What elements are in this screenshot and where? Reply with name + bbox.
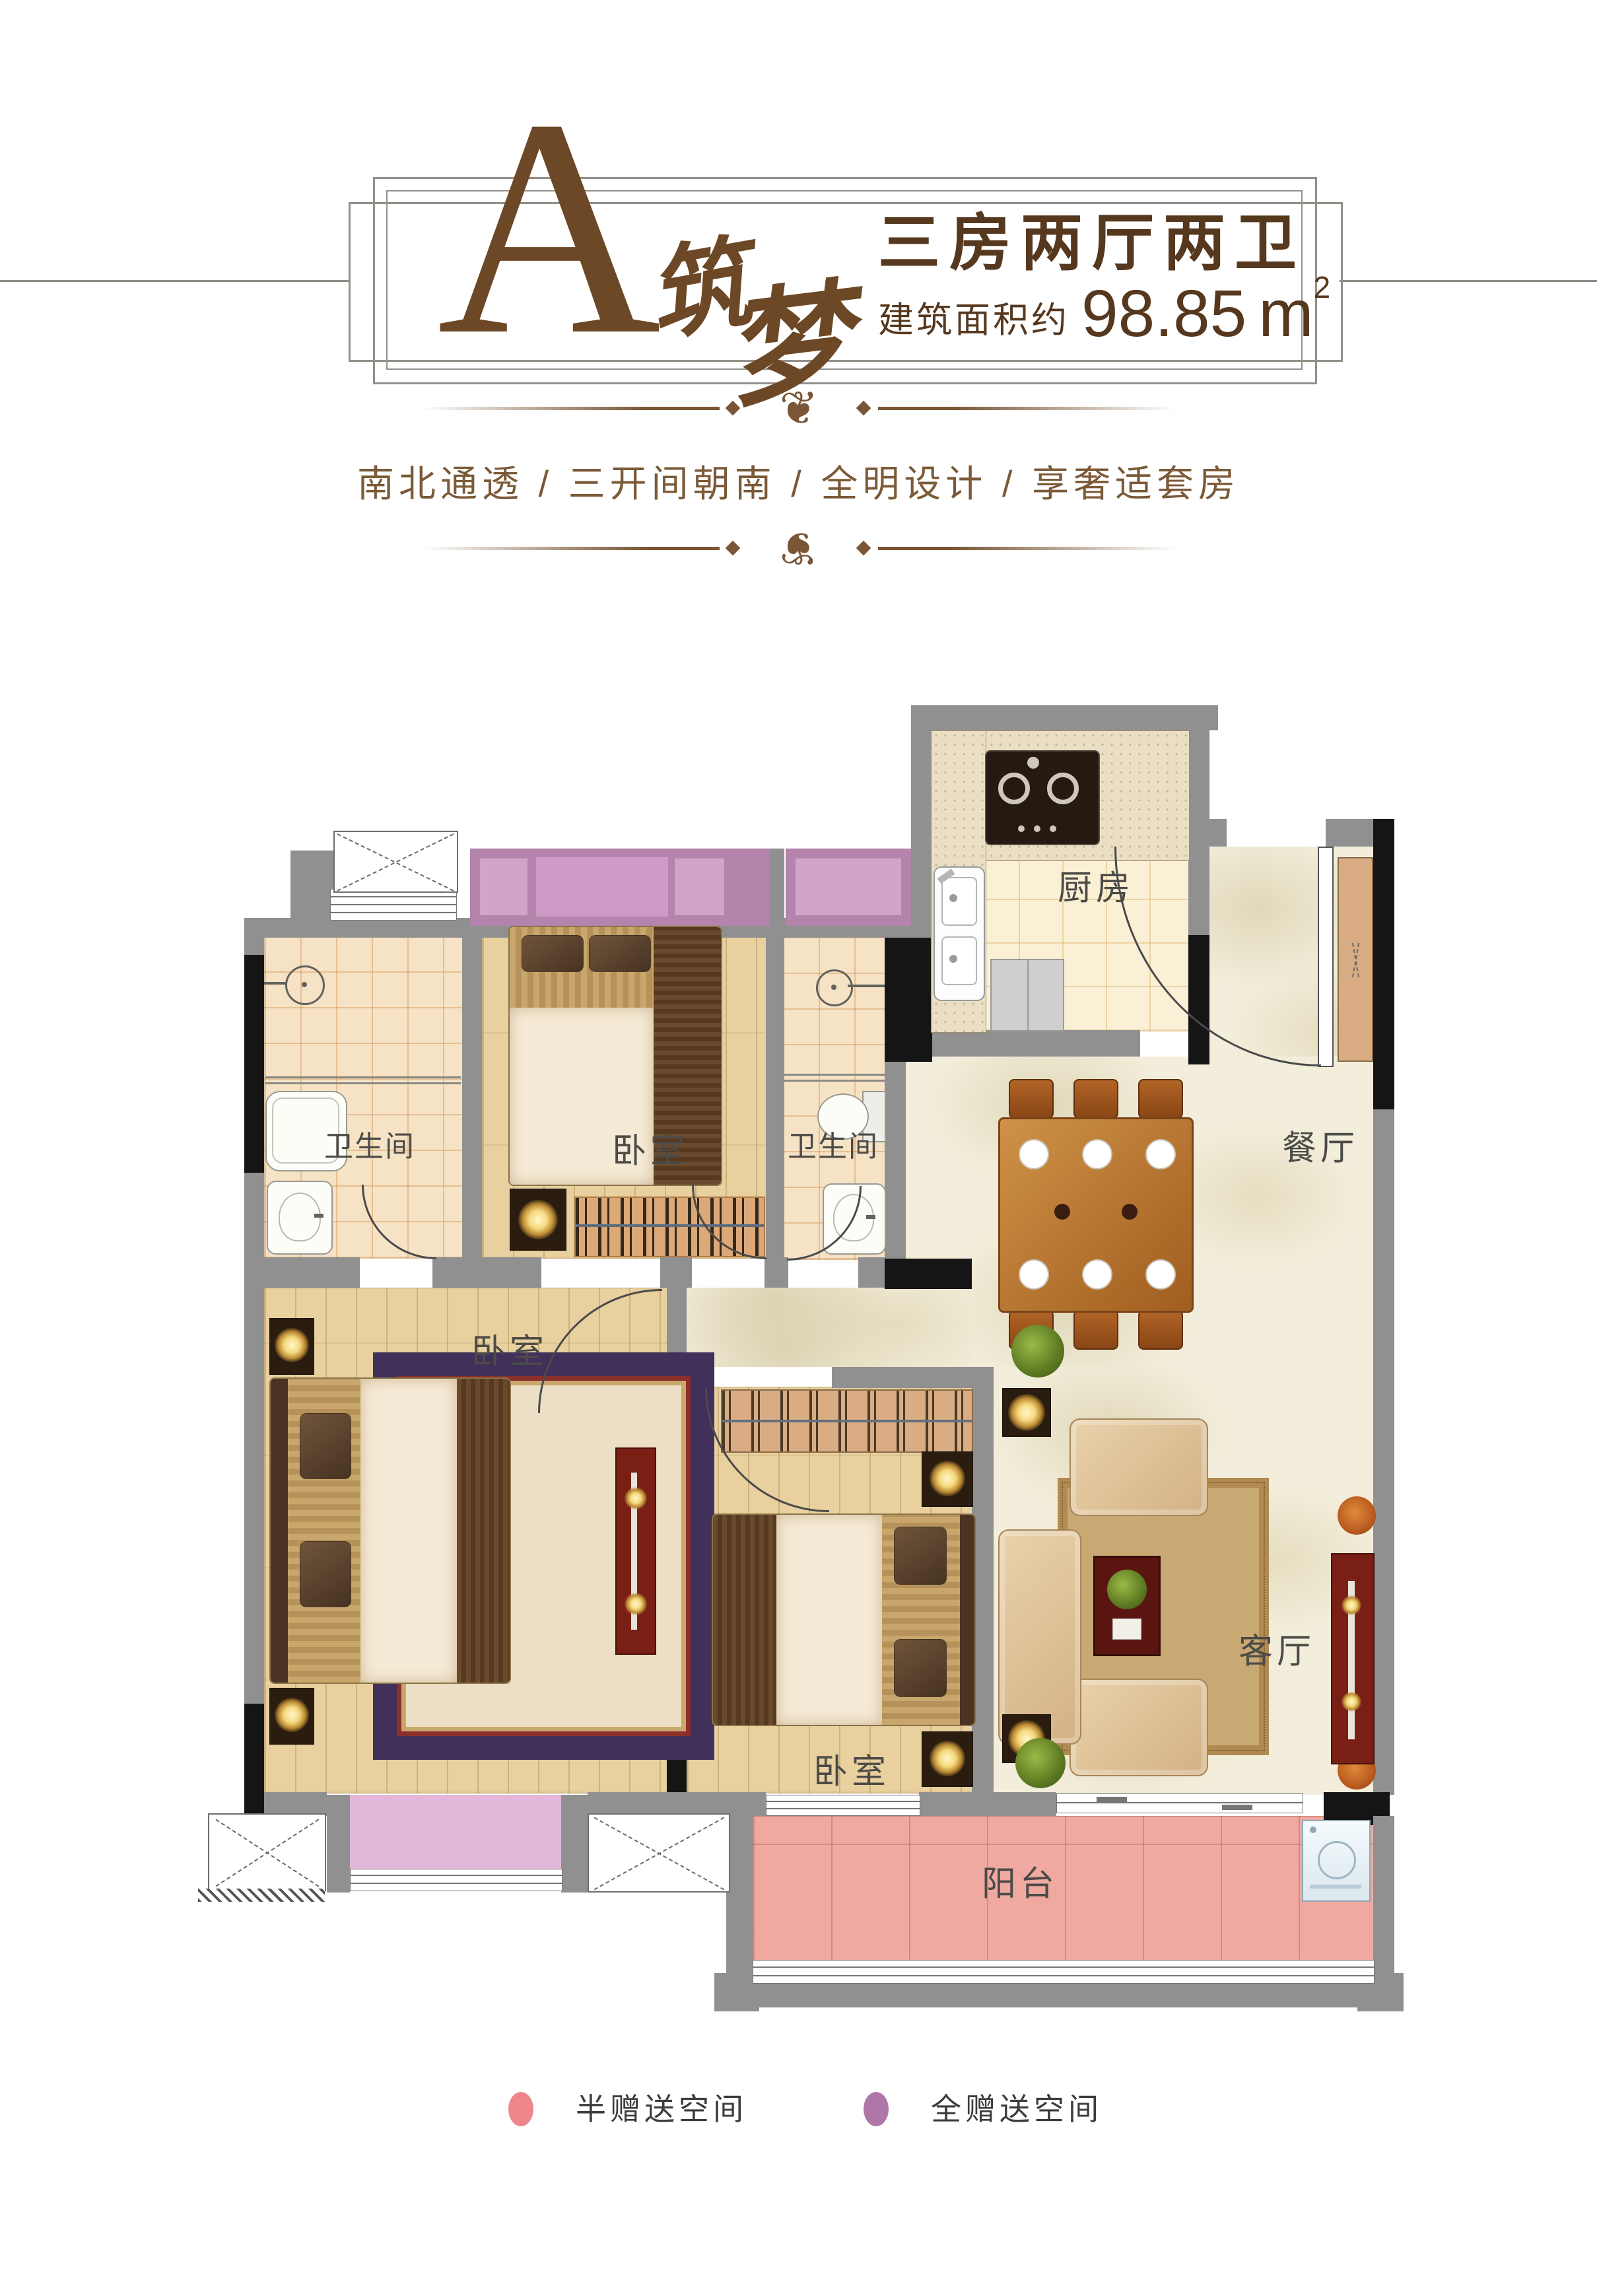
divider2-line-left xyxy=(423,547,720,550)
wall xyxy=(327,1795,350,1893)
tv-cabinet-icon xyxy=(615,1447,656,1655)
hatch-band xyxy=(198,1889,325,1902)
balcony-rail xyxy=(753,1960,1375,1984)
bath-top-label: 卫生间 xyxy=(324,1123,415,1165)
nightstand-icon xyxy=(269,1318,314,1375)
balcony-tile-line xyxy=(753,1844,1373,1845)
wall xyxy=(919,1792,1056,1816)
block-letter: A xyxy=(437,85,661,370)
wall xyxy=(726,1982,1394,2007)
bed-icon xyxy=(269,1377,511,1684)
sofa-icon xyxy=(1070,1418,1208,1516)
glass-partition xyxy=(265,1076,461,1078)
window xyxy=(766,1795,920,1816)
wall-column xyxy=(885,1259,972,1289)
chair-icon xyxy=(1073,1079,1118,1119)
plant-icon xyxy=(1011,1325,1064,1377)
entry-door-arc xyxy=(1114,847,1321,1066)
legend-dot-full-gift xyxy=(864,2092,889,2126)
bedroom-top-label: 卧室 xyxy=(612,1123,689,1173)
shower-icon xyxy=(285,965,325,1005)
chair-icon xyxy=(1138,1079,1183,1119)
fridge-icon xyxy=(990,959,1064,1031)
flue-box xyxy=(333,831,458,893)
flourish-icon: ❦ xyxy=(780,521,819,575)
nightstand-icon xyxy=(922,1451,973,1507)
kitchen-sink-icon xyxy=(934,866,985,1001)
header-rule-right xyxy=(1340,280,1597,282)
area-prefix: 建筑面积约 xyxy=(878,302,1070,343)
bed-icon xyxy=(712,1513,976,1726)
wall xyxy=(911,705,1218,730)
wall xyxy=(244,1173,264,1704)
shoe-cabinet-icon xyxy=(1338,857,1373,1062)
legend-label-full-gift: 全赠送空间 xyxy=(931,2092,1103,2126)
layout-title: 三房两厅两卫 xyxy=(878,193,1306,283)
wall xyxy=(858,1257,885,1288)
bath-mid-label: 卫生间 xyxy=(788,1123,879,1165)
bay-window-full-gift xyxy=(350,1795,561,1870)
wall xyxy=(264,1792,327,1816)
area-value: 98.85 xyxy=(1081,284,1246,343)
poster-page: A 筑 梦 三房两厅两卫 建筑面积约98.85m2 ❦ 南北通透 / 三开间朝南… xyxy=(0,0,1597,2296)
washing-machine-icon xyxy=(1302,1820,1371,1902)
chair-icon xyxy=(1138,1310,1183,1350)
nightstand-icon xyxy=(510,1189,566,1251)
header-rule-left xyxy=(0,280,349,282)
shower-icon xyxy=(816,969,853,1006)
bath-sink-icon xyxy=(267,1181,333,1255)
wall xyxy=(264,1257,360,1288)
stove-icon xyxy=(985,750,1100,845)
shower-arm xyxy=(264,982,287,985)
wall-column xyxy=(1373,819,1394,1109)
wall xyxy=(765,1257,788,1288)
bay-window-full-gift xyxy=(470,849,769,926)
bedroom-middle-label: 卧室 xyxy=(813,1744,890,1793)
wall xyxy=(462,924,482,1288)
tv-cabinet-icon xyxy=(1331,1553,1375,1764)
floor-lamp-icon xyxy=(1002,1388,1051,1437)
wall xyxy=(832,1367,994,1388)
window xyxy=(350,1869,562,1891)
divider2-line-right xyxy=(878,547,1175,550)
bay-window-full-gift xyxy=(786,849,911,926)
wall xyxy=(687,1792,766,1816)
wall-column xyxy=(244,955,264,1173)
wall xyxy=(911,730,931,924)
coffee-table-icon xyxy=(1093,1556,1161,1656)
chair-icon xyxy=(1073,1310,1118,1350)
bedroom-master-label: 卧室 xyxy=(471,1324,548,1374)
dining-label: 餐厅 xyxy=(1282,1121,1359,1170)
sofa-icon xyxy=(1070,1679,1208,1776)
wall xyxy=(1373,1109,1394,1795)
divider2-diamond-left xyxy=(726,541,741,556)
area-line: 建筑面积约98.85m2 xyxy=(878,284,1330,343)
dining-table-icon xyxy=(998,1117,1194,1313)
sofa-icon xyxy=(998,1529,1081,1745)
divider-line-right xyxy=(878,407,1175,410)
living-label: 客厅 xyxy=(1239,1624,1315,1673)
balcony-label: 阳台 xyxy=(982,1856,1058,1906)
glass-partition xyxy=(784,1080,885,1082)
plant-icon xyxy=(1338,1496,1376,1535)
wall-column xyxy=(244,1704,264,1819)
wall xyxy=(885,1062,906,1259)
glass-partition xyxy=(265,1082,461,1084)
wall xyxy=(561,1795,588,1893)
hallway-floor xyxy=(687,1288,974,1367)
room-balcony-floor xyxy=(753,1816,1375,1964)
wall xyxy=(932,1030,1140,1057)
wall xyxy=(1208,819,1227,847)
kitchen-label: 厨房 xyxy=(1058,860,1134,910)
flue-box xyxy=(208,1813,326,1891)
legend-label-half-gift: 半赠送空间 xyxy=(576,2092,747,2126)
glass-partition xyxy=(784,1074,885,1076)
wall-column xyxy=(885,924,932,1062)
wall xyxy=(660,1257,692,1288)
sliding-door xyxy=(1056,1793,1303,1813)
chair-icon xyxy=(1009,1079,1054,1119)
area-superscript: 2 xyxy=(1314,272,1331,302)
nightstand-icon xyxy=(922,1731,973,1787)
flourish-icon: ❦ xyxy=(780,381,819,435)
divider-line-left xyxy=(423,407,720,410)
window xyxy=(330,889,457,921)
shower-arm xyxy=(848,985,885,987)
tagline: 南北通透 / 三开间朝南 / 全明设计 / 享奢适套房 xyxy=(0,454,1597,508)
nightstand-icon xyxy=(269,1688,314,1745)
legend-dot-half-gift xyxy=(508,2092,533,2126)
divider2-diamond-right xyxy=(856,541,871,556)
plant-icon xyxy=(1015,1738,1066,1788)
flue-box xyxy=(588,1813,730,1893)
area-unit: m xyxy=(1258,284,1313,343)
wall xyxy=(432,1257,541,1288)
